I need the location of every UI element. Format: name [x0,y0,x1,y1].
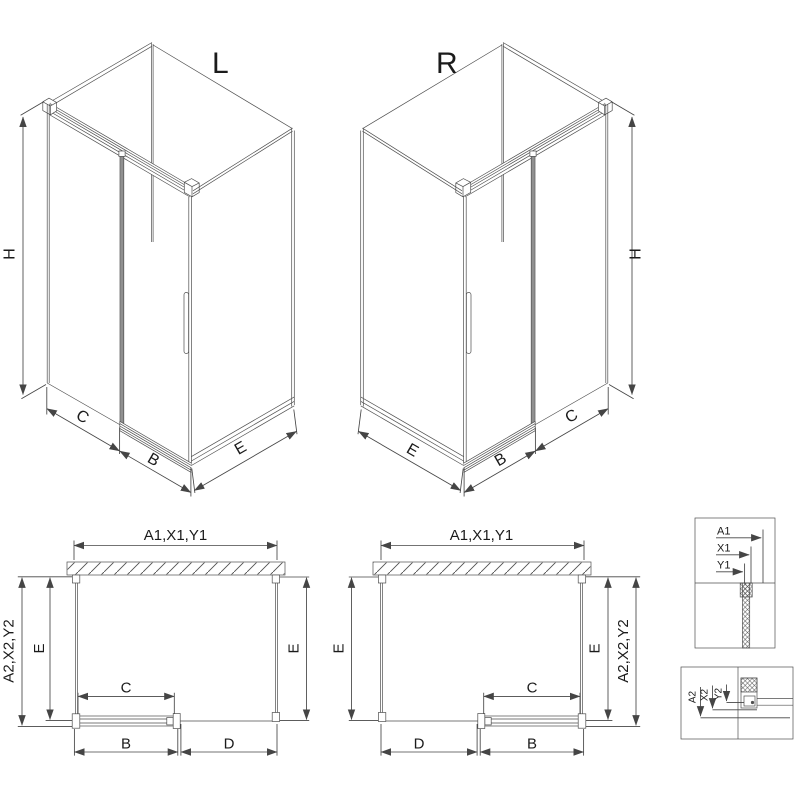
dim-label-h-right: H [628,248,645,260]
wall-hatch-right-plan [374,563,591,575]
detail-view-top: A1 X1 Y1 [695,518,775,648]
plan-left-e-left: E [31,643,48,653]
technical-drawing: A1 X1 Y1 A2 X2 Y2 L H C B E R H E B C A1… [0,0,800,800]
glass-profile-section [740,583,752,597]
iso-view-right-geometry [358,43,634,497]
plan-right-b: B [527,736,537,753]
dim-label-c-right: C [562,406,581,427]
roller-pin [751,701,754,704]
iso-view-left-geometry [21,43,297,497]
plan-right-e-left: E [331,643,348,653]
detail-label-a2: A2 [688,690,699,703]
wall-hatch-left-plan [68,563,285,575]
detail-label-x1: X1 [717,543,730,555]
floor-track-lines [757,698,793,705]
roller-guide [744,696,755,706]
plan-right-c: C [527,680,538,697]
plan-right-d: D [414,736,425,753]
plan-right-e-right: E [587,643,604,653]
detail-label-x2: X2 [700,688,711,701]
detail-view-bottom: A2 X2 Y2 [681,667,793,739]
dim-label-c-left: C [73,407,92,428]
dim-label-e-right: E [403,441,421,461]
rail-profile-hatch [741,678,757,692]
plan-left-b: B [121,736,131,753]
plan-left-top-dim: A1,X1,Y1 [144,527,207,544]
dim-label-h-left: H [2,248,19,260]
iso-view-left-labels: L H C B E [2,47,250,470]
detail-label-y2: Y2 [714,687,725,700]
dim-label-e-left: E [232,439,250,459]
view-title-right: R [436,47,458,80]
plan-left-outer-dim: A2,X2,Y2 [1,619,18,682]
plan-left-c: C [121,680,132,697]
detail-label-y1: Y1 [717,560,730,572]
detail-label-a1: A1 [717,526,730,538]
plan-right-top-dim: A1,X1,Y1 [450,527,513,544]
plan-left-e-right: E [286,643,303,653]
plan-right-outer-dim: A2,X2,Y2 [615,619,632,682]
drawing-page: A1 X1 Y1 A2 X2 Y2 L H C B E R H E B C A1… [0,0,800,800]
plan-left-d: D [224,736,235,753]
view-title-left: L [212,47,229,80]
